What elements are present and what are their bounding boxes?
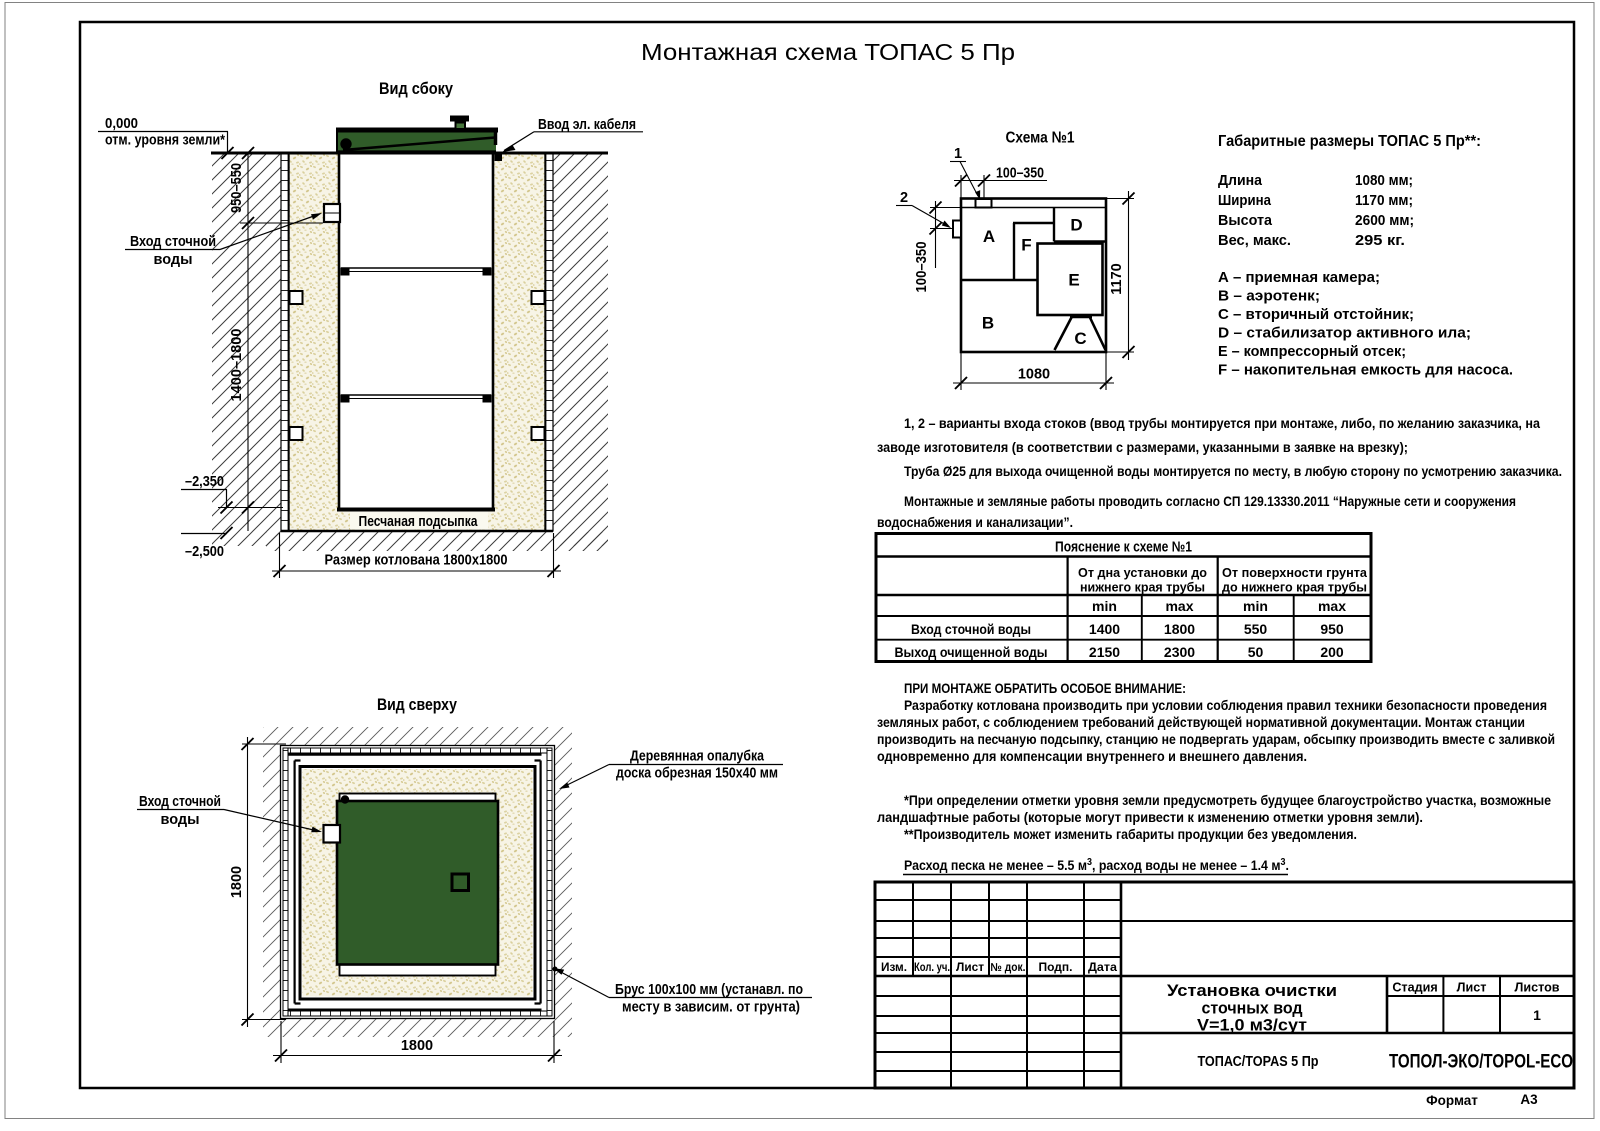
- svg-text:1170 мм;: 1170 мм;: [1355, 192, 1413, 209]
- svg-text:1080 мм;: 1080 мм;: [1355, 172, 1413, 189]
- svg-text:воды: воды: [154, 252, 193, 268]
- svg-text:2300: 2300: [1164, 644, 1195, 660]
- svg-text:Вид сбоку: Вид сбоку: [379, 80, 454, 98]
- svg-text:min: min: [1092, 598, 1117, 614]
- svg-text:Ширина: Ширина: [1218, 192, 1272, 209]
- svg-text:Кол. уч.: Кол. уч.: [914, 962, 950, 974]
- svg-text:100–350: 100–350: [914, 242, 930, 293]
- svg-text:производить на песчаную подсып: производить на песчаную подсыпку, станци…: [877, 732, 1555, 747]
- svg-text:Вход сточной: Вход сточной: [139, 794, 221, 810]
- svg-text:Длина: Длина: [1218, 172, 1263, 189]
- svg-text:1, 2 – варианты входа стоков: 1, 2 – варианты входа стоков (ввод трубы…: [904, 416, 1540, 431]
- svg-text:200: 200: [1320, 644, 1344, 660]
- svg-text:D – стабилизатор активного ила: D – стабилизатор активного ила;: [1218, 325, 1471, 342]
- svg-text:доска обрезная 150х40 мм: доска обрезная 150х40 мм: [616, 766, 778, 782]
- svg-text:295 кг.: 295 кг.: [1355, 232, 1405, 249]
- svg-text:Схема №1: Схема №1: [1006, 130, 1075, 147]
- svg-text:В – аэротенк;: В – аэротенк;: [1218, 288, 1320, 305]
- svg-text:Расход песка не менее – 5.5 м3: Расход песка не менее – 5.5 м3, расход в…: [904, 857, 1289, 874]
- svg-text:100–350: 100–350: [996, 166, 1044, 182]
- svg-text:Вид сверху: Вид сверху: [377, 696, 458, 714]
- svg-text:Труба Ø25 для выхода очищенной: Труба Ø25 для выхода очищенной воды монт…: [904, 464, 1562, 479]
- svg-text:V=1,0 м3/сут: V=1,0 м3/сут: [1197, 1017, 1307, 1035]
- svg-text:Габаритные размеры ТОПАС 5 Пр*: Габаритные размеры ТОПАС 5 Пр**:: [1218, 133, 1481, 150]
- svg-text:2150: 2150: [1089, 644, 1120, 660]
- svg-text:Вход сточной воды: Вход сточной воды: [911, 621, 1031, 637]
- svg-text:max: max: [1318, 598, 1346, 614]
- svg-text:F – накопительная емкость для: F – накопительная емкость для насоса.: [1218, 362, 1513, 379]
- svg-text:Деревянная опалубка: Деревянная опалубка: [630, 749, 765, 765]
- svg-text:ТОПАС/TOPAS 5 Пр: ТОПАС/TOPAS 5 Пр: [1198, 1054, 1319, 1070]
- svg-text:водоснабжения и канализации”.: водоснабжения и канализации”.: [877, 515, 1073, 530]
- svg-text:Стадия: Стадия: [1392, 981, 1437, 995]
- svg-text:Лист: Лист: [1457, 981, 1487, 995]
- svg-text:Установка очистки: Установка очистки: [1167, 982, 1337, 1000]
- svg-text:1800: 1800: [1164, 621, 1195, 637]
- svg-text:ландшафтные работы (которые мо: ландшафтные работы (которые могут привес…: [877, 810, 1423, 825]
- svg-text:Е – компрессорный отсек;: Е – компрессорный отсек;: [1218, 343, 1406, 360]
- svg-text:до нижнего края трубы: до нижнего края трубы: [1222, 581, 1367, 595]
- svg-text:F: F: [1021, 236, 1031, 255]
- svg-text:950: 950: [1320, 621, 1344, 637]
- svg-text:От дна установки до: От дна установки до: [1078, 566, 1207, 580]
- svg-text:1: 1: [1533, 1007, 1541, 1023]
- svg-text:отм. уровня земли*: отм. уровня земли*: [105, 133, 225, 149]
- svg-text:min: min: [1243, 598, 1268, 614]
- svg-text:Листов: Листов: [1514, 981, 1559, 995]
- svg-text:Подп.: Подп.: [1039, 962, 1073, 974]
- svg-text:1400–1800: 1400–1800: [229, 329, 245, 402]
- svg-text:А – приемная камера;: А – приемная камера;: [1218, 269, 1380, 286]
- svg-text:E: E: [1068, 271, 1079, 290]
- svg-text:50: 50: [1248, 644, 1264, 660]
- svg-text:ТОПОЛ-ЭКО/TOPOL-ECO: ТОПОЛ-ЭКО/TOPOL-ECO: [1389, 1052, 1573, 1073]
- svg-text:Монтажные и земляные работы пр: Монтажные и земляные работы проводить со…: [904, 494, 1516, 509]
- svg-text:сточных вод: сточных вод: [1202, 1000, 1304, 1018]
- svg-text:max: max: [1165, 598, 1193, 614]
- svg-text:Ввод эл. кабеля: Ввод эл. кабеля: [538, 117, 636, 133]
- svg-text:Монтажная схема ТОПАС 5 Пр: Монтажная схема ТОПАС 5 Пр: [641, 39, 1015, 65]
- svg-text:950–550: 950–550: [229, 163, 245, 213]
- svg-text:заводе изготовителя (в соответ: заводе изготовителя (в соответствии с ра…: [877, 440, 1408, 455]
- svg-text:А3: А3: [1520, 1092, 1538, 1107]
- svg-text:C: C: [1074, 329, 1086, 348]
- svg-text:0,000: 0,000: [105, 116, 138, 132]
- svg-text:550: 550: [1244, 621, 1268, 637]
- svg-text:1800: 1800: [401, 1038, 433, 1054]
- svg-text:одновременно для компенсации в: одновременно для компенсации внутреннего…: [877, 749, 1307, 764]
- svg-text:№ док.: № док.: [991, 962, 1026, 974]
- svg-text:От поверхности грунта: От поверхности грунта: [1222, 566, 1368, 580]
- svg-text:С – вторичный отстойник;: С – вторичный отстойник;: [1218, 306, 1414, 323]
- svg-text:B: B: [982, 314, 994, 333]
- svg-text:воды: воды: [161, 812, 200, 828]
- svg-text:*При определении отметки уровн: *При определении отметки уровня земли пр…: [904, 793, 1551, 808]
- svg-text:Брус 100х100 мм (устанавл. по: Брус 100х100 мм (устанавл. по: [615, 982, 803, 998]
- svg-text:**Производитель может изменить: **Производитель может изменить габариты …: [904, 827, 1357, 842]
- svg-text:земляных работ, с соблюдением: земляных работ, с соблюдением требований…: [877, 715, 1525, 730]
- svg-text:1: 1: [954, 146, 962, 162]
- svg-text:2: 2: [900, 190, 908, 206]
- svg-text:Формат: Формат: [1426, 1093, 1478, 1108]
- svg-text:1400: 1400: [1089, 621, 1120, 637]
- svg-text:2600 мм;: 2600 мм;: [1355, 212, 1414, 229]
- svg-text:D: D: [1070, 216, 1082, 235]
- svg-text:Песчаная подсыпка: Песчаная подсыпка: [359, 514, 479, 530]
- svg-text:Лист: Лист: [956, 962, 984, 974]
- svg-text:Пояснение к схеме №1: Пояснение к схеме №1: [1055, 540, 1192, 556]
- svg-text:–2,500: –2,500: [185, 544, 224, 560]
- svg-text:Изм.: Изм.: [881, 962, 907, 974]
- svg-text:Размер котлована 1800х1800: Размер котлована 1800х1800: [325, 553, 508, 569]
- svg-text:1170: 1170: [1109, 263, 1125, 294]
- svg-text:ПРИ МОНТАЖЕ ОБРАТИТЬ ОСОБОЕ ВН: ПРИ МОНТАЖЕ ОБРАТИТЬ ОСОБОЕ ВНИМАНИЕ:: [904, 681, 1186, 697]
- svg-text:нижнего края трубы: нижнего края трубы: [1080, 581, 1205, 595]
- svg-text:Вход сточной: Вход сточной: [130, 234, 216, 250]
- svg-text:месту в зависим. от грунта): месту в зависим. от грунта): [622, 1000, 800, 1016]
- svg-text:1800: 1800: [229, 866, 245, 898]
- svg-text:Выход очищенной воды: Выход очищенной воды: [895, 644, 1048, 660]
- svg-text:Высота: Высота: [1218, 212, 1273, 229]
- svg-text:Дата: Дата: [1088, 962, 1118, 974]
- svg-text:–2,350: –2,350: [185, 474, 224, 490]
- svg-text:Разработку котлована производи: Разработку котлована производить при усл…: [904, 698, 1547, 713]
- svg-text:A: A: [983, 227, 995, 246]
- svg-text:1080: 1080: [1018, 367, 1050, 383]
- svg-text:Вес, макс.: Вес, макс.: [1218, 232, 1291, 249]
